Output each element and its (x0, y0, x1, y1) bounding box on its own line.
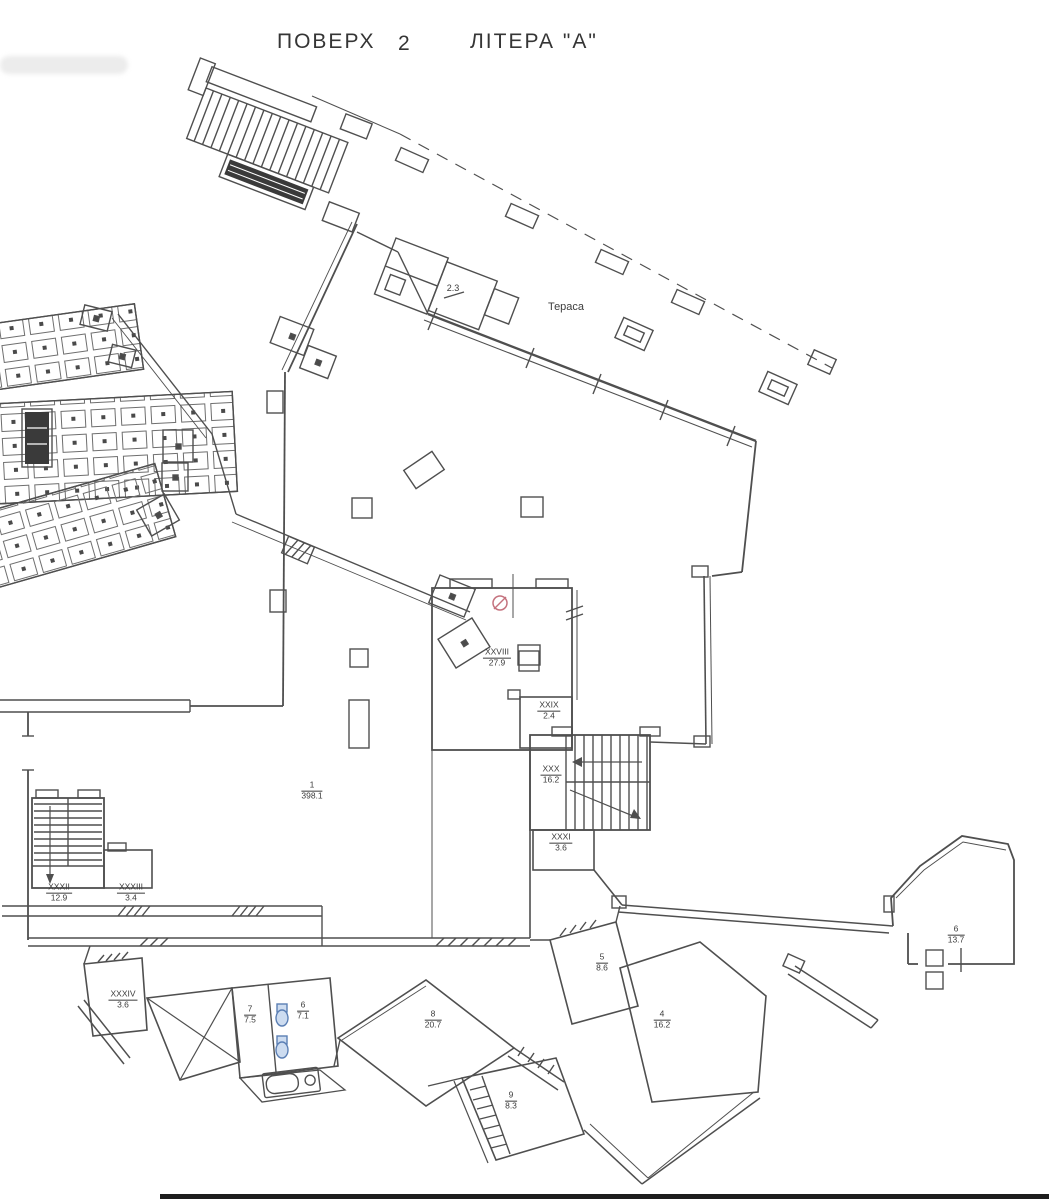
toilet-icon (276, 1004, 288, 1026)
room-label-xxxii: XXXII12.9 (46, 883, 72, 904)
terrace-railing (424, 308, 756, 447)
stair-top-left (162, 58, 391, 232)
toilet-icons (276, 1004, 288, 1058)
adjacent-section (0, 304, 490, 668)
terrace-label: Тераса (548, 301, 584, 313)
room-label-xxxiii: XXXIII3.4 (117, 883, 145, 904)
room-label-8: 820.7 (425, 1010, 442, 1031)
room-label-6-wc: 67.1 (297, 1001, 309, 1022)
room-label-6-right: 613.7 (948, 925, 965, 946)
room-label-9: 98.3 (505, 1091, 517, 1112)
room-label-4: 416.2 (654, 1010, 671, 1031)
room-label-7: 77.5 (244, 1005, 256, 1026)
room-label-xxxi: XXXI3.6 (549, 833, 572, 854)
room-label-xxx: XXX16.2 (540, 765, 561, 786)
room-label-xxxiv: XXXIV3.6 (108, 990, 137, 1011)
floor-plan-drawing (0, 0, 1049, 1200)
east-walls (650, 441, 756, 747)
room-label-5: 58.6 (596, 953, 608, 974)
toilet-icon (276, 1036, 288, 1058)
stair-xxxii-walls (32, 790, 152, 888)
room-label-xxix: XXIX2.4 (537, 701, 560, 722)
bottom-band-walls (78, 906, 766, 1184)
hall-columns (349, 451, 543, 748)
room-label-xxviii: XXVIII27.9 (483, 648, 511, 669)
room-label-hall: 1398.1 (301, 781, 322, 802)
scan-border (160, 1194, 1049, 1199)
floor-plan-page: ПОВЕРХ 2 ЛІТЕРА "А" (0, 0, 1049, 1200)
terrace-area-label: 2.3 (447, 283, 460, 293)
